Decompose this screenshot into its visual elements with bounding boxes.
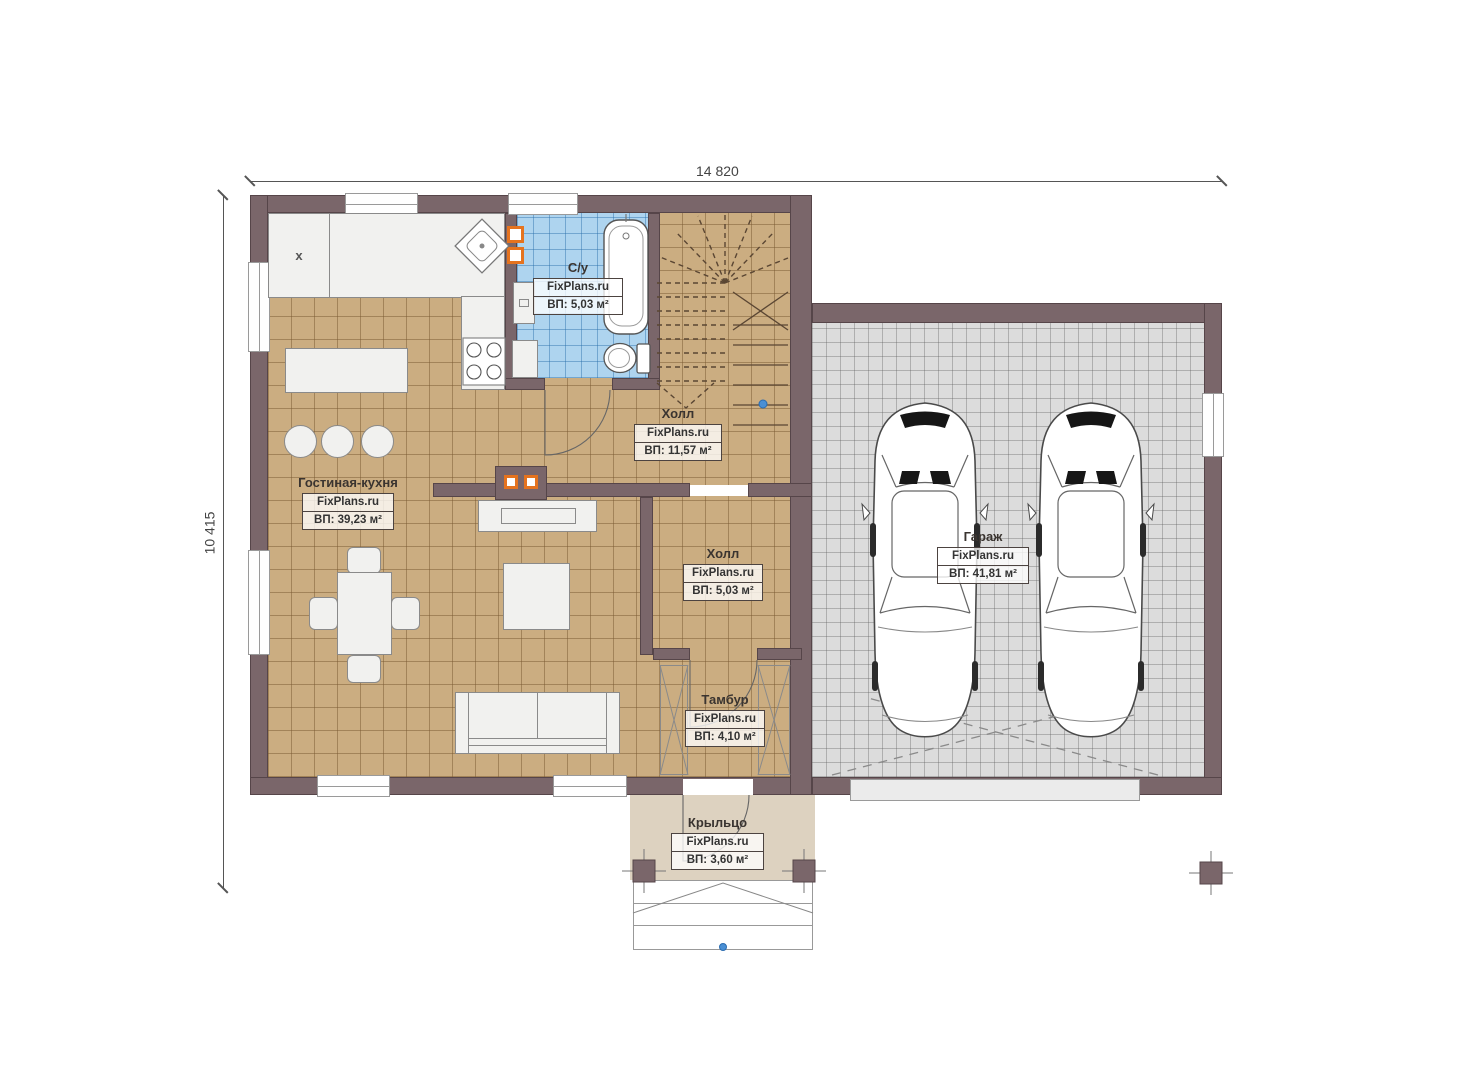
room-label-tambur: Тамбур FixPlans.ru ВП: 4,10 м² xyxy=(685,692,765,747)
fireplace-vent xyxy=(504,475,518,489)
room-area: ВП: 11,57 м² xyxy=(635,443,721,460)
room-name: Гараж xyxy=(937,529,1029,544)
room-area: ВП: 39,23 м² xyxy=(303,512,393,529)
kitchen-fridge: x xyxy=(268,213,330,298)
room-info-box: FixPlans.ru ВП: 39,23 м² xyxy=(302,493,394,530)
tv-console xyxy=(478,500,597,532)
bath-mat xyxy=(512,340,538,378)
watermark: FixPlans.ru xyxy=(684,565,762,583)
wall-bath-south-a xyxy=(505,378,545,390)
window-kitchen-north xyxy=(345,193,418,215)
dining-chair xyxy=(391,597,420,630)
wall-living-hall-a xyxy=(433,483,690,497)
room-area: ВП: 3,60 м² xyxy=(672,852,763,869)
step-line xyxy=(634,903,812,904)
sofa-armrest xyxy=(456,693,469,753)
room-area: ВП: 5,03 м² xyxy=(684,583,762,600)
wall-garage-north xyxy=(812,303,1222,323)
bar-stool xyxy=(321,425,354,458)
sofa-seat-divider xyxy=(537,693,538,739)
kitchen-counter-side xyxy=(461,296,505,390)
window-living-south-2 xyxy=(553,775,627,797)
room-area: ВП: 41,81 м² xyxy=(938,566,1028,583)
coffee-table xyxy=(503,563,570,630)
room-info-box: FixPlans.ru ВП: 3,60 м² xyxy=(671,833,764,870)
washing-machine xyxy=(513,282,535,324)
boiler xyxy=(507,247,524,264)
wall-bath-south-b xyxy=(612,378,660,390)
dimension-line-height xyxy=(223,195,224,888)
washing-machine-door xyxy=(519,299,529,307)
room-area: ВП: 5,03 м² xyxy=(534,297,622,314)
watermark: FixPlans.ru xyxy=(938,548,1028,566)
sofa-armrest xyxy=(606,693,619,753)
window-garage-east xyxy=(1202,393,1224,457)
dimension-height-label: 10 415 xyxy=(201,512,217,555)
tv-screen xyxy=(501,508,576,524)
watermark: FixPlans.ru xyxy=(534,279,622,297)
dining-table xyxy=(337,572,392,655)
window-living-south-1 xyxy=(317,775,390,797)
floor-plan: x xyxy=(0,0,1474,1080)
kitchen-unit-marker: x xyxy=(295,248,302,263)
room-label-stair-hall: Холл FixPlans.ru ВП: 11,57 м² xyxy=(634,406,722,461)
step-line xyxy=(634,925,812,926)
bar-stool xyxy=(361,425,394,458)
wall-living-hall-b xyxy=(748,483,812,497)
room-name: Холл xyxy=(683,546,763,561)
garage-gate-opening xyxy=(850,779,1140,801)
room-name: С/у xyxy=(533,260,623,275)
wall-hall-west xyxy=(640,497,653,655)
dining-chair xyxy=(347,547,381,574)
room-info-box: FixPlans.ru ВП: 5,03 м² xyxy=(683,564,763,601)
room-info-box: FixPlans.ru ВП: 11,57 м² xyxy=(634,424,722,461)
sofa-back-line xyxy=(469,745,606,746)
room-area: ВП: 4,10 м² xyxy=(686,729,764,746)
room-name: Холл xyxy=(634,406,722,421)
dining-chair xyxy=(309,597,338,630)
wall-tambur-north-b xyxy=(757,648,802,660)
fireplace xyxy=(495,466,547,500)
porch-steps xyxy=(633,880,813,950)
room-label-garage: Гараж FixPlans.ru ВП: 41,81 м² xyxy=(937,529,1029,584)
wall-bath-east xyxy=(648,213,660,390)
dining-chair xyxy=(347,655,381,683)
window-dining-west xyxy=(248,550,270,655)
watermark: FixPlans.ru xyxy=(672,834,763,852)
window-kitchen-west xyxy=(248,262,270,352)
room-label-porch: Крыльцо FixPlans.ru ВП: 3,60 м² xyxy=(671,815,764,870)
room-label-living: Гостиная-кухня FixPlans.ru ВП: 39,23 м² xyxy=(292,475,404,530)
room-name: Крыльцо xyxy=(671,815,764,830)
boiler xyxy=(507,226,524,243)
window-bath-north xyxy=(508,193,578,215)
door-opening-hall xyxy=(690,485,748,496)
wall-tambur-north-a xyxy=(653,648,690,660)
wall-garage-east xyxy=(1204,303,1222,795)
fireplace-vent xyxy=(524,475,538,489)
sofa xyxy=(455,692,620,754)
room-name: Гостиная-кухня xyxy=(292,475,404,490)
kitchen-island xyxy=(285,348,408,393)
dimension-line-width xyxy=(250,181,1222,182)
room-info-box: FixPlans.ru ВП: 5,03 м² xyxy=(533,278,623,315)
bar-stool xyxy=(284,425,317,458)
room-name: Тамбур xyxy=(685,692,765,707)
door-opening-porch xyxy=(683,779,753,795)
site-post xyxy=(1200,862,1222,884)
room-label-bath: С/у FixPlans.ru ВП: 5,03 м² xyxy=(533,260,623,315)
room-label-hall: Холл FixPlans.ru ВП: 5,03 м² xyxy=(683,546,763,601)
watermark: FixPlans.ru xyxy=(303,494,393,512)
room-info-box: FixPlans.ru ВП: 41,81 м² xyxy=(937,547,1029,584)
watermark: FixPlans.ru xyxy=(635,425,721,443)
closet xyxy=(660,665,688,775)
room-info-box: FixPlans.ru ВП: 4,10 м² xyxy=(685,710,765,747)
watermark: FixPlans.ru xyxy=(686,711,764,729)
dimension-width-label: 14 820 xyxy=(696,163,739,179)
